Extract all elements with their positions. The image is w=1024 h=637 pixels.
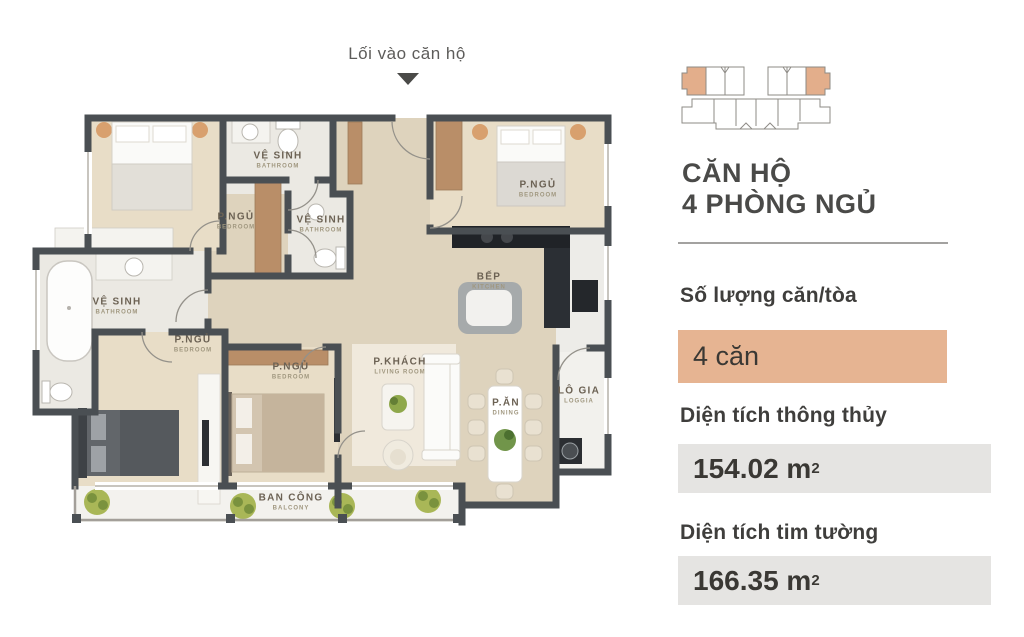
room-name: P.NGỦ: [519, 179, 557, 191]
apartment-title-line2: 4 PHÒNG NGỦ: [682, 189, 877, 220]
room-name: LÔ GIA: [558, 385, 600, 397]
room-subname: BEDROOM: [519, 192, 557, 199]
room-subname: BATHROOM: [296, 227, 345, 234]
apartment-title: CĂN HỘ 4 PHÒNG NGỦ: [682, 158, 877, 221]
room-subname: BATHROOM: [253, 163, 302, 170]
room-labels-layer: VỆ SINHBATHROOMP.NGỦBEDROOMVỆ SINHBATHRO…: [0, 0, 660, 637]
room-label-bedroom-left: P.NGỦBEDROOM: [174, 334, 212, 353]
room-subname: KITCHEN: [472, 284, 506, 291]
room-subname: BEDROOM: [272, 374, 310, 381]
room-name: VỆ SINH: [296, 214, 345, 226]
room-label-loggia: LÔ GIALOGGIA: [558, 385, 600, 404]
room-name: VỆ SINH: [92, 296, 141, 308]
gross-area-label: Diện tích tim tường: [680, 521, 878, 545]
entrance-label: Lối vào căn hộ: [348, 44, 466, 64]
room-name: P.NGỦ: [272, 361, 310, 373]
room-name: P.NGỦ: [217, 211, 255, 223]
room-name: BẾP: [472, 271, 506, 283]
room-label-bathroom-top: VỆ SINHBATHROOM: [253, 150, 302, 169]
room-label-kitchen: BẾPKITCHEN: [472, 271, 506, 290]
room-name: BAN CÔNG: [259, 492, 324, 504]
room-subname: BEDROOM: [217, 224, 255, 231]
floor-plan-page: Lối vào căn hộ VỆ SINHBATHROOMP.NGỦBEDRO…: [0, 0, 1024, 637]
room-label-bedroom-center: P.NGỦBEDROOM: [272, 361, 310, 380]
room-name: P.KHÁCH: [373, 356, 426, 368]
room-subname: LIVING ROOM: [373, 369, 426, 376]
units-per-tower-label: Số lượng căn/tòa: [680, 284, 857, 308]
room-name: P.ĂN: [492, 397, 520, 409]
key-plan-diagram: [680, 63, 832, 133]
net-area-value-box: 154.02 m2: [678, 444, 991, 493]
net-area-value: 154.02 m: [678, 453, 811, 485]
room-subname: BALCONY: [259, 505, 324, 512]
room-label-bedroom-top-left: P.NGỦBEDROOM: [217, 211, 255, 230]
room-name: P.NGỦ: [174, 334, 212, 346]
room-label-living-room: P.KHÁCHLIVING ROOM: [373, 356, 426, 375]
gross-area-value: 166.35 m: [678, 565, 811, 597]
units-value-box: 4 căn: [678, 330, 947, 383]
apartment-title-line1: CĂN HỘ: [682, 158, 877, 189]
room-subname: LOGGIA: [558, 398, 600, 405]
room-subname: DINING: [492, 410, 520, 417]
gross-area-value-box: 166.35 m2: [678, 556, 991, 605]
room-label-bedroom-top-right: P.NGỦBEDROOM: [519, 179, 557, 198]
room-name: VỆ SINH: [253, 150, 302, 162]
title-divider: [678, 242, 948, 244]
room-label-bathroom-left: VỆ SINHBATHROOM: [92, 296, 141, 315]
net-area-label: Diện tích thông thủy: [680, 404, 887, 428]
room-label-bathroom-middle: VỆ SINHBATHROOM: [296, 214, 345, 233]
room-subname: BATHROOM: [92, 309, 141, 316]
units-value: 4 căn: [678, 341, 759, 372]
room-subname: BEDROOM: [174, 347, 212, 354]
room-label-balcony: BAN CÔNGBALCONY: [259, 492, 324, 511]
room-label-dining: P.ĂNDINING: [492, 397, 520, 416]
